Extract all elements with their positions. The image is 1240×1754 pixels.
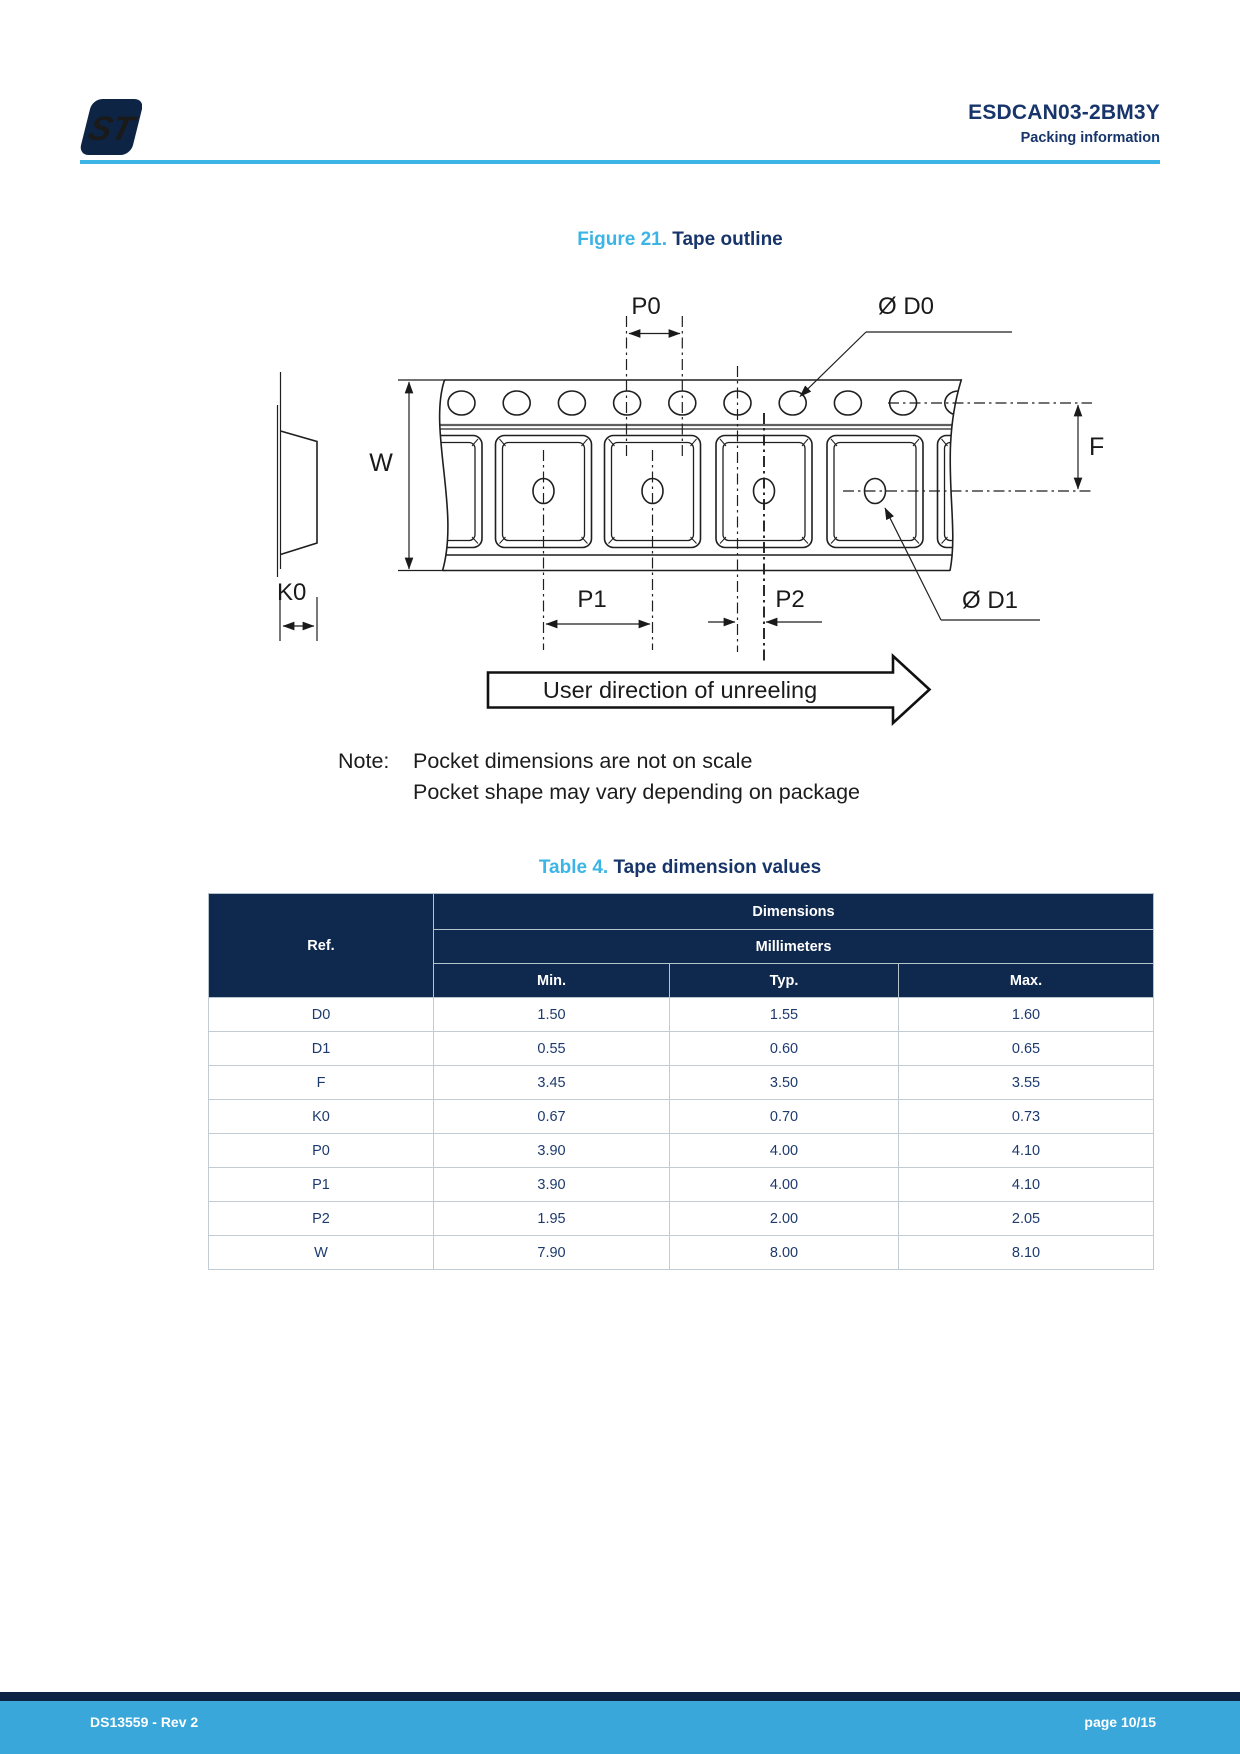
tape-outline-drawing: K0 [0, 250, 1240, 750]
header-title-block: ESDCAN03-2BM3Y Packing information [968, 101, 1160, 146]
k0-label: K0 [277, 579, 306, 606]
product-title: ESDCAN03-2BM3Y [968, 101, 1160, 125]
st-logo-icon: ST [78, 93, 142, 161]
p2-label: P2 [775, 586, 804, 613]
tape-dimension-table: Ref. Dimensions Millimeters Min. Typ. Ma… [208, 893, 1153, 1270]
col-header-min: Min. [434, 964, 670, 998]
note-line: Pocket shape may vary depending on packa… [413, 777, 860, 808]
d1-label: Ø D1 [962, 587, 1018, 614]
figure-title: Tape outline [672, 229, 782, 250]
table-row: P21.95 2.002.05 [209, 1202, 1154, 1236]
col-header-max: Max. [899, 964, 1154, 998]
dimensions: P0 Ø D0 W F P1 P2 Ø D1 [369, 293, 1104, 624]
footer-navy-strip [0, 1692, 1240, 1701]
unreeling-text: User direction of unreeling [543, 677, 817, 703]
figure-note: Note: Pocket dimensions are not on scale… [338, 746, 860, 808]
f-label: F [1089, 433, 1104, 461]
p1-label: P1 [577, 586, 606, 613]
footer-bar: DS13559 - Rev 2 page 10/15 [0, 1701, 1240, 1754]
tape-side-view: K0 [277, 372, 317, 641]
section-subtitle: Packing information [968, 130, 1160, 146]
col-header-unit: Millimeters [434, 930, 1154, 964]
d1-leader [885, 508, 941, 620]
footer-doc-ref: DS13559 - Rev 2 [90, 1714, 198, 1730]
table-row: P13.90 4.004.10 [209, 1168, 1154, 1202]
col-header-ref: Ref. [209, 894, 434, 998]
figure-label: Figure 21. [577, 229, 667, 250]
pocket-holes [533, 479, 886, 504]
header-rule [80, 160, 1160, 164]
note-line: Pocket dimensions are not on scale [413, 746, 860, 777]
table-row: D10.55 0.600.65 [209, 1032, 1154, 1066]
w-label: W [369, 449, 393, 477]
table-row: D01.50 1.551.60 [209, 998, 1154, 1032]
table-title: Tape dimension values [613, 857, 821, 878]
table-row: K00.67 0.700.73 [209, 1100, 1154, 1134]
footer-page-number: page 10/15 [1084, 1714, 1156, 1730]
table-row: P03.90 4.004.10 [209, 1134, 1154, 1168]
d0-label: Ø D0 [878, 293, 934, 320]
p0-label: P0 [631, 293, 660, 320]
note-label: Note: [338, 746, 389, 777]
d0-leader [800, 332, 866, 397]
datasheet-page: ST ESDCAN03-2BM3Y Packing information Fi… [0, 0, 1240, 1754]
table-row: W7.90 8.008.10 [209, 1236, 1154, 1270]
col-header-dimensions: Dimensions [434, 894, 1154, 930]
figure-caption: Figure 21. Tape outline [140, 229, 1220, 251]
table-label: Table 4. [539, 857, 608, 878]
table-row: F3.45 3.503.55 [209, 1066, 1154, 1100]
unreeling-direction: User direction of unreeling [488, 656, 930, 723]
tape-strip [386, 391, 1034, 555]
table-caption: Table 4. Tape dimension values [140, 857, 1220, 879]
col-header-typ: Typ. [670, 964, 899, 998]
